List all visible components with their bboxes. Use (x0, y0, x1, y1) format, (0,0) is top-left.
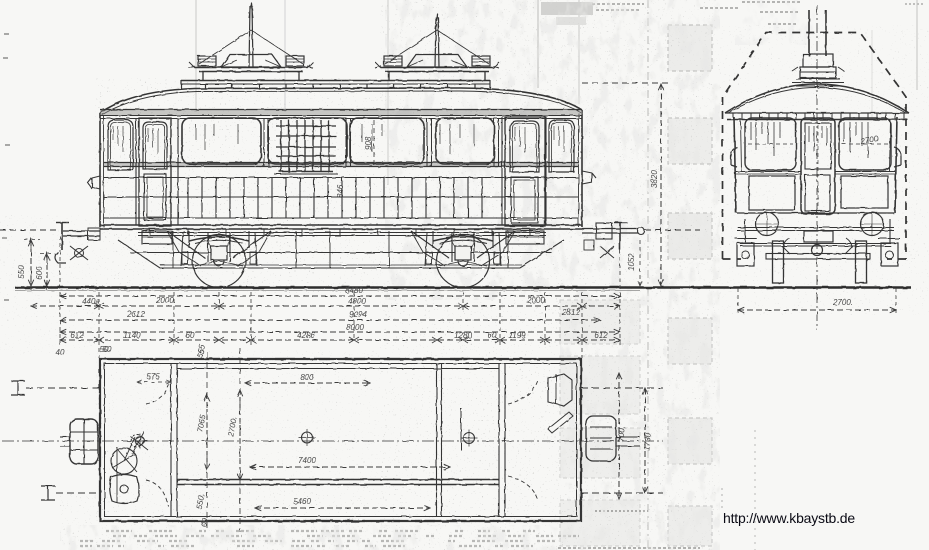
svg-text:1280: 1280 (454, 331, 472, 340)
svg-text:2000: 2000 (526, 296, 545, 305)
svg-text:7400: 7400 (298, 456, 316, 465)
svg-text:440a: 440a (82, 297, 100, 306)
svg-text:4800: 4800 (348, 297, 366, 306)
svg-text:800: 800 (300, 373, 314, 382)
svg-text:40: 40 (56, 348, 65, 357)
svg-text:8480: 8480 (345, 286, 363, 295)
svg-text:1730: 1730 (642, 432, 653, 451)
svg-text:50: 50 (103, 345, 112, 354)
svg-text:612: 612 (594, 331, 608, 340)
svg-text:612: 612 (70, 331, 84, 340)
svg-text:9294: 9294 (349, 310, 367, 319)
svg-text:700,: 700, (616, 426, 626, 442)
svg-text:4286: 4286 (297, 331, 315, 340)
svg-text:575: 575 (146, 372, 160, 381)
svg-text:1140: 1140 (123, 331, 141, 340)
svg-text:5460: 5460 (293, 497, 311, 506)
svg-text:2612: 2612 (126, 310, 145, 319)
svg-text:8000: 8000 (346, 323, 364, 332)
svg-text:60: 60 (186, 331, 195, 340)
svg-text:1199: 1199 (508, 331, 526, 340)
svg-text:2812: 2812 (561, 308, 580, 317)
svg-text:908: 908 (364, 136, 373, 150)
svg-text:600: 600 (35, 266, 44, 280)
svg-text:http://www.kbaystb.de: http://www.kbaystb.de (723, 510, 855, 526)
svg-text:846: 846 (336, 184, 345, 198)
svg-text:1052: 1052 (627, 253, 636, 271)
svg-text:60: 60 (488, 331, 497, 340)
svg-text:2700.: 2700. (832, 298, 853, 307)
svg-text:3820.: 3820. (650, 168, 659, 188)
svg-text:550: 550 (17, 265, 26, 279)
svg-text:2000.: 2000. (155, 296, 176, 305)
